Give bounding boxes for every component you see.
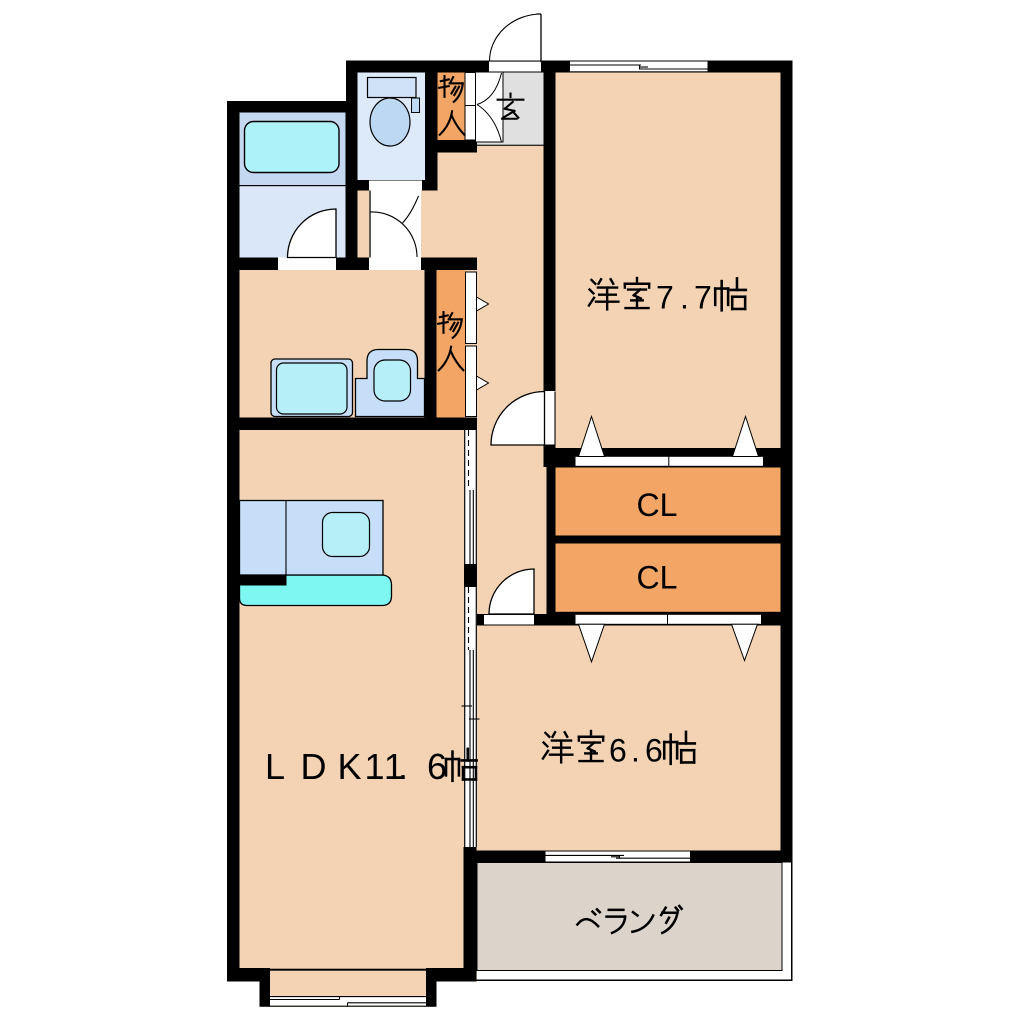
- svg-text:7: 7: [656, 280, 674, 316]
- svg-text:CL: CL: [637, 487, 678, 523]
- svg-text:L: L: [265, 746, 285, 787]
- svg-text:.: .: [398, 746, 408, 787]
- svg-text:.: .: [680, 280, 689, 316]
- svg-text:6: 6: [427, 746, 447, 787]
- svg-text:7: 7: [694, 280, 712, 316]
- svg-text:6: 6: [645, 733, 663, 769]
- svg-text:K: K: [338, 746, 362, 787]
- svg-text:.: .: [631, 733, 640, 769]
- svg-text:CL: CL: [637, 560, 678, 596]
- svg-text:D: D: [301, 746, 327, 787]
- svg-text:6: 6: [609, 733, 627, 769]
